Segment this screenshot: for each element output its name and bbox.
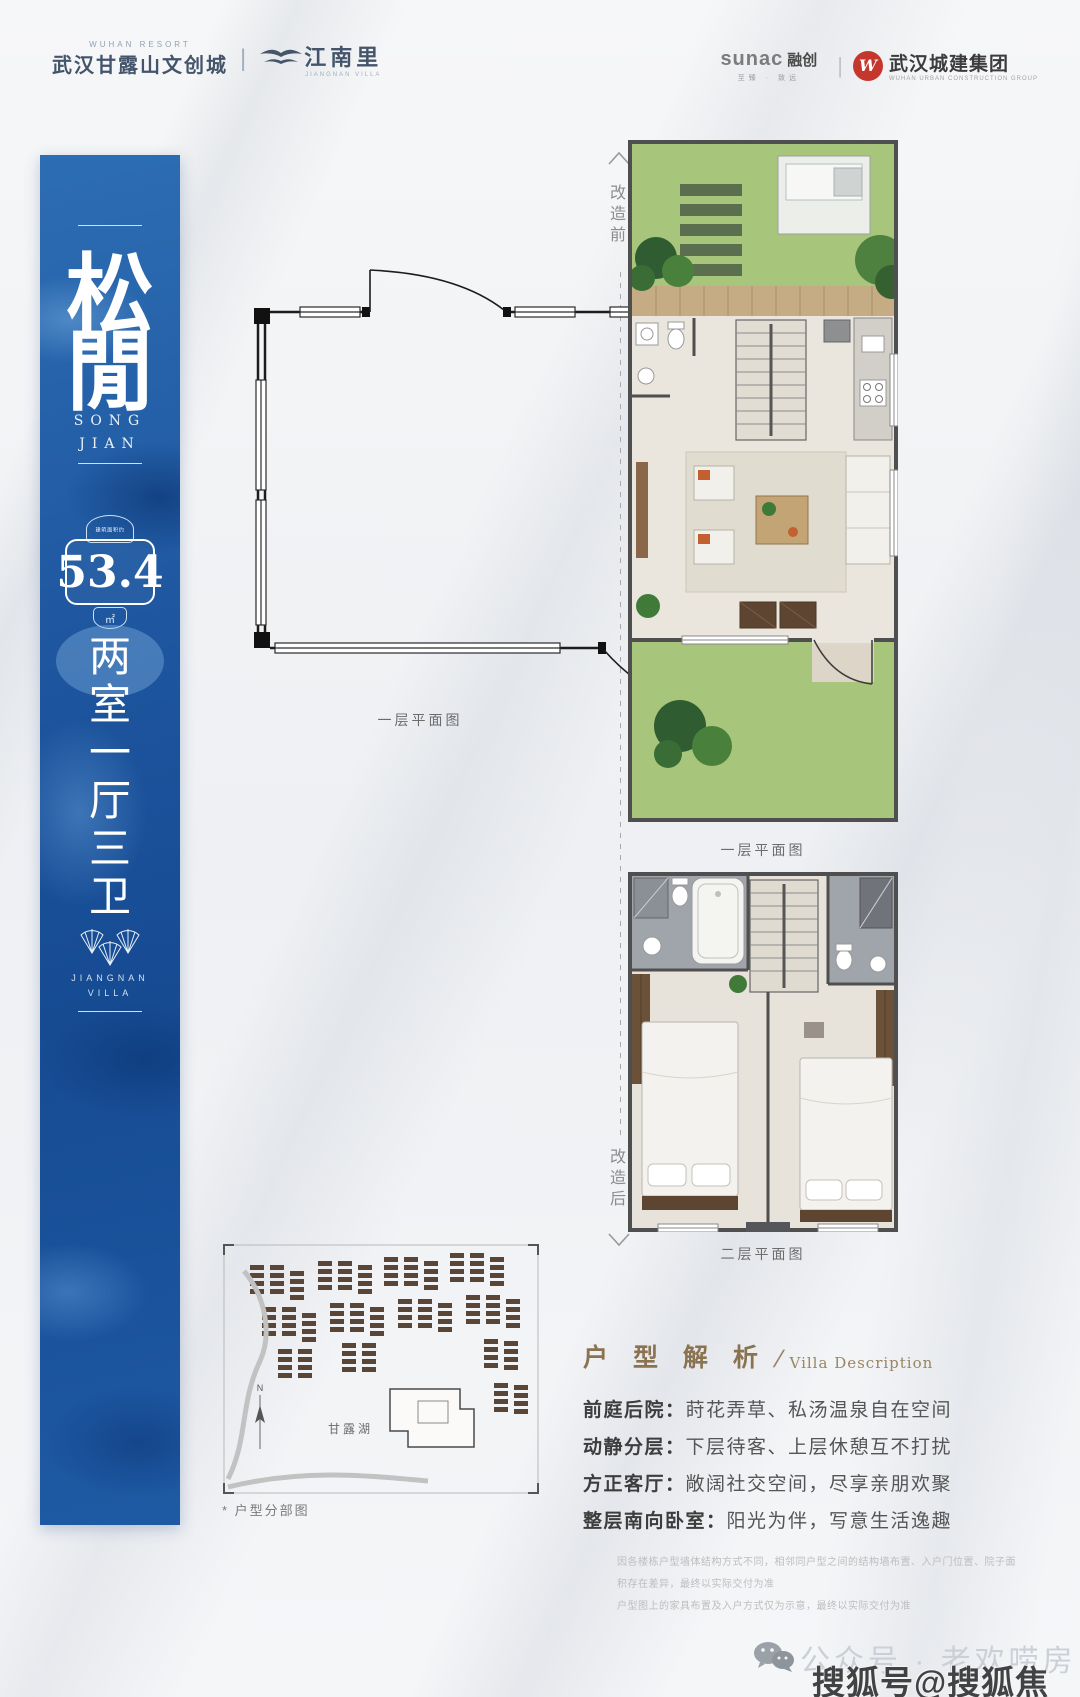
disclaimer-line-2: 户型图上的家具布置及入户方式仅为示意，最终以实际交付为准 (617, 1596, 1017, 1618)
item-body: 下层待客、上层休憩互不打扰 (686, 1437, 953, 1458)
description-item: 方正客厅：敞阔社交空间，尽享亲朋欢聚 (583, 1466, 1053, 1503)
banner-bottom-rule (78, 1011, 142, 1012)
item-body: 莳花弄草、私汤温泉自在空间 (686, 1400, 953, 1421)
resort-logo-cn: 武汉甘露山文创城 (52, 49, 228, 78)
layout-char: 室 (89, 681, 131, 729)
layout-description-vertical: 两 室 一 厅 三 卫 (40, 633, 180, 921)
poster-page: WUHAN RESORT 武汉甘露山文创城 | 江南里 JIANGNAN VIL… (0, 0, 1080, 1697)
builder-name-en: WUHAN URBAN CONSTRUCTION GROUP (889, 76, 1038, 82)
item-body: 阳光为伴，写意生活逸趣 (727, 1511, 953, 1532)
sunac-logo-en: sunac (720, 48, 783, 71)
description-list: 前庭后院：莳花弄草、私汤温泉自在空间 动静分层：下层待客、上层休憩互不打扰 方正… (583, 1392, 1053, 1540)
bathroom-left (632, 876, 748, 970)
item-head: 前庭后院： (583, 1400, 686, 1421)
description-item: 整层南向卧室：阳光为伴，写意生活逸趣 (583, 1503, 1053, 1540)
item-head: 整层南向卧室： (583, 1511, 727, 1532)
sunac-slogan: 至臻 · 致远 (738, 73, 800, 83)
area-value-box: 53.4 (65, 539, 155, 605)
wechat-icon (752, 1640, 796, 1674)
area-unit: ㎡ (105, 611, 115, 626)
window-top-2 (515, 307, 575, 317)
patio-pad (812, 642, 874, 682)
banner-top-rule (78, 225, 142, 226)
window-top-1 (300, 307, 360, 317)
header-right-logos: sunac 融创 至臻 · 致远 | W 武汉城建集团 WUHAN URBAN … (720, 48, 1038, 83)
layout-char: 卫 (89, 873, 131, 921)
resort-logo-en: WUHAN RESORT (89, 40, 191, 49)
header-divider-2: | (837, 53, 843, 79)
area-label: 建筑面积约 (96, 525, 125, 533)
unit-title-char-2: 閒 (40, 327, 180, 415)
after-label: 改造后 (603, 1148, 627, 1211)
description-item: 前庭后院：莳花弄草、私汤温泉自在空间 (583, 1392, 1053, 1429)
header-divider: | (240, 45, 246, 73)
window-left (256, 380, 266, 625)
sohu-watermark: 搜狐号@搜狐焦点铜川站 (812, 1656, 1080, 1697)
unit-title-en-1: SONG (40, 413, 180, 429)
builder-logo-group: W 武汉城建集团 WUHAN URBAN CONSTRUCTION GROUP (853, 49, 1038, 82)
disclaimer-line-1: 因各楼栋户型墙体结构方式不同，相邻同户型之间的结构墙布置、入户门位置、院子面积存… (617, 1552, 1017, 1596)
floor1-plan (628, 140, 898, 822)
item-head: 方正客厅： (583, 1474, 686, 1495)
disclaimer: 因各楼栋户型墙体结构方式不同，相邻同户型之间的结构墙布置、入户门位置、院子面积存… (617, 1552, 1017, 1618)
entry-door (370, 270, 504, 312)
before-label: 改造前 (603, 184, 627, 247)
layout-char: 三 (89, 825, 131, 873)
resort-logo: WUHAN RESORT 武汉甘露山文创城 (52, 40, 228, 78)
window-bottom (275, 643, 560, 653)
after-renovation-marker: 改造后 (598, 1148, 632, 1211)
brand-logo: 江南里 JIANGNAN VILLA (258, 40, 382, 78)
floor2-caption: 二层平面图 (628, 1244, 898, 1264)
site-map: N 甘露湖 (222, 1243, 540, 1495)
clubhouse-building (390, 1389, 474, 1447)
sunac-logo-cn: 融创 (787, 49, 817, 70)
description-title-cn: 户 型 解 析 (583, 1338, 767, 1374)
description-title-en: Villa Description (790, 1354, 934, 1374)
stairs-floor1 (736, 320, 806, 440)
stairs-floor2 (750, 880, 818, 992)
header-left-logos: WUHAN RESORT 武汉甘露山文创城 | 江南里 JIANGNAN VIL… (52, 40, 382, 78)
brand-name-en: JIANGNAN VILLA (304, 72, 382, 78)
original-plan-caption: 一层平面图 (320, 710, 520, 730)
villa-clusters (250, 1253, 528, 1414)
unit-title-en-2: JIAN (40, 436, 180, 452)
item-head: 动静分层： (583, 1437, 686, 1458)
description-title: 户 型 解 析 / Villa Description (583, 1338, 933, 1374)
compass-icon: N (255, 1383, 265, 1449)
sitemap-caption: * 户型分部图 (222, 1500, 310, 1519)
shell-icon (71, 923, 149, 972)
layout-char: 厅 (89, 777, 131, 825)
compass-north-label: N (257, 1383, 264, 1393)
bathroom-right (828, 876, 894, 984)
sunac-logo: sunac 融创 至臻 · 致远 (720, 48, 817, 83)
builder-name-cn: 武汉城建集团 (889, 49, 1038, 76)
layout-char: 一 (89, 729, 131, 777)
brand-swoosh-icon (258, 44, 304, 74)
layout-char: 两 (89, 633, 131, 681)
floor2-plan (628, 872, 898, 1232)
area-value: 53.4 (56, 547, 163, 598)
banner-mid-rule (78, 463, 142, 464)
window-south (682, 636, 788, 644)
unit-banner: 松 閒 SONG JIAN 建筑面积约 53.4 ㎡ 两 室 一 厅 三 卫 J… (40, 155, 180, 1525)
banner-villa-en-1: JIANGNAN (40, 973, 180, 983)
item-body: 敞阔社交空间，尽享亲朋欢聚 (686, 1474, 953, 1495)
floor1-caption: 一层平面图 (628, 840, 898, 860)
before-renovation-marker: 改造前 (598, 184, 632, 247)
description-title-slash: / (770, 1346, 786, 1374)
banner-villa-en-2: VILLA (40, 988, 180, 998)
description-item: 动静分层：下层待客、上层休憩互不打扰 (583, 1429, 1053, 1466)
builder-round-icon: W (853, 51, 883, 81)
south-wall-pier (746, 1222, 790, 1232)
spa-pool (778, 156, 870, 234)
wood-deck (632, 286, 894, 316)
brand-name-cn: 江南里 (304, 40, 382, 72)
lake-label: 甘露湖 (328, 1421, 373, 1436)
